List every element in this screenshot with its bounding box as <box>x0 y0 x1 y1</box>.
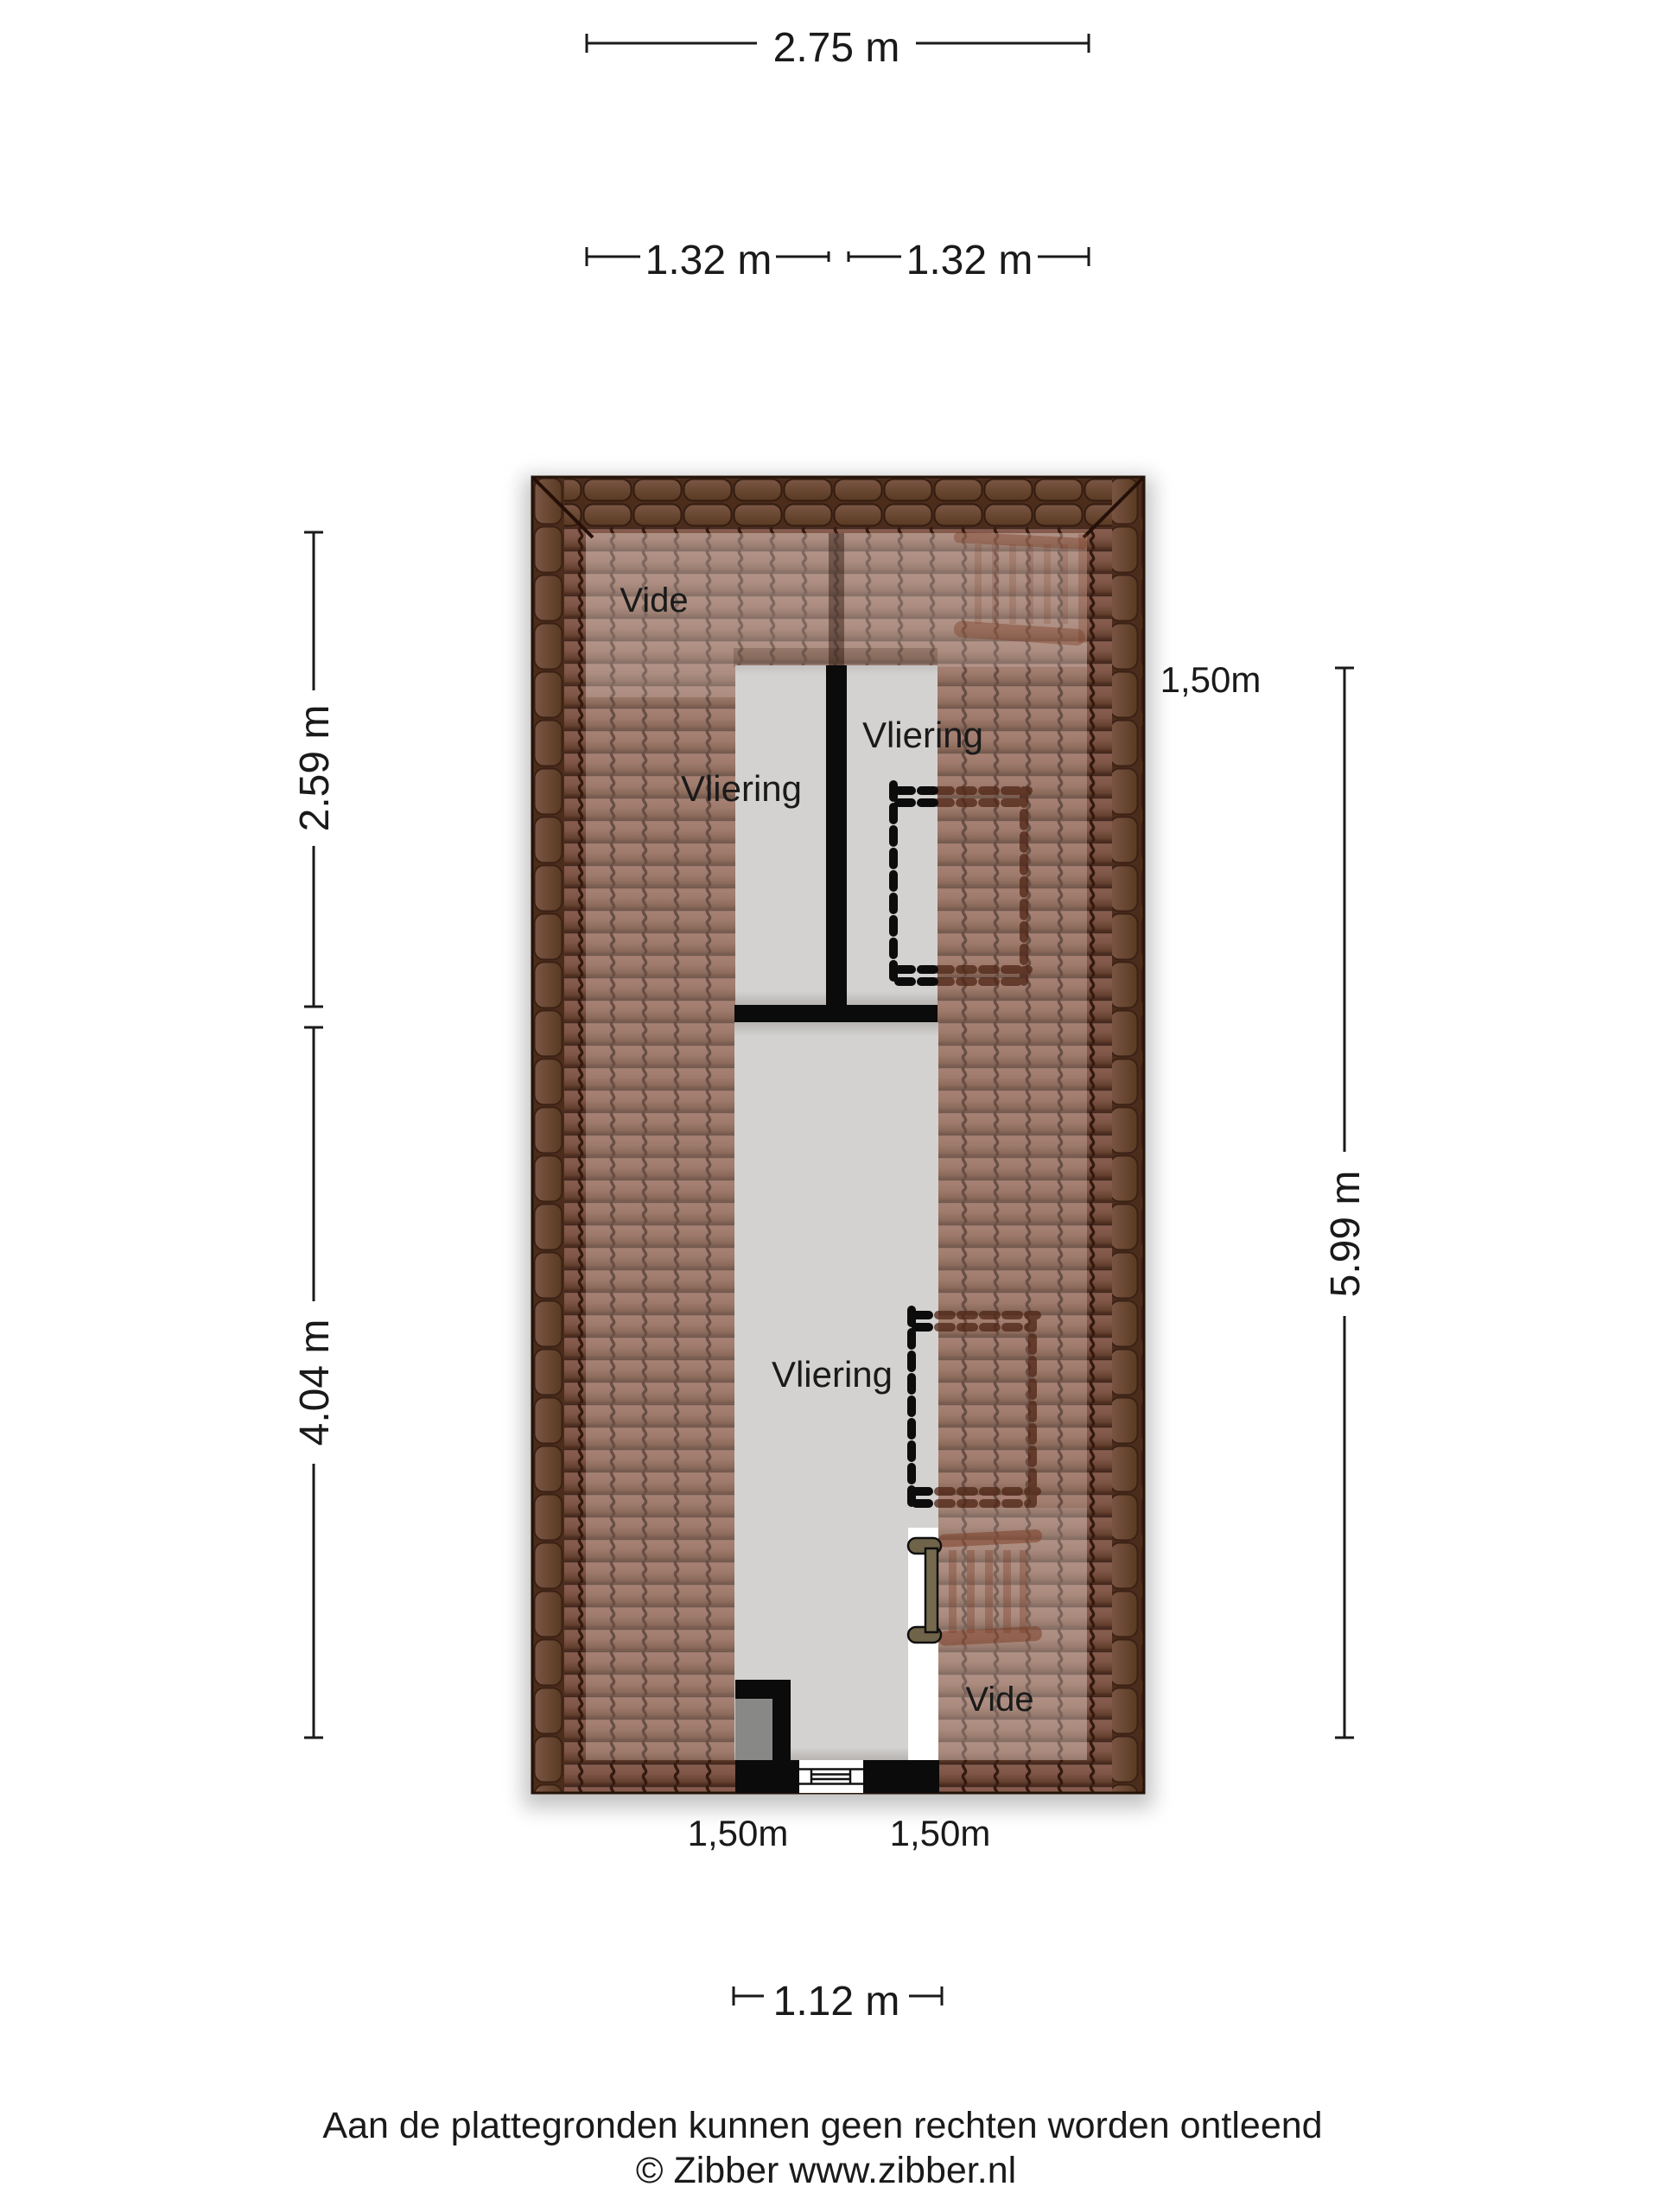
svg-text:1.12 m: 1.12 m <box>773 1979 900 2024</box>
svg-text:1,50m: 1,50m <box>688 1813 789 1853</box>
svg-text:Vide: Vide <box>620 582 688 620</box>
svg-text:Vliering: Vliering <box>681 768 802 809</box>
svg-text:Aan de plattegronden kunnen ge: Aan de plattegronden kunnen geen rechten… <box>322 2105 1322 2146</box>
svg-text:© Zibber www.zibber.nl: © Zibber www.zibber.nl <box>636 2150 1016 2191</box>
svg-text:Vliering: Vliering <box>772 1354 893 1395</box>
svg-text:Vide: Vide <box>965 1681 1033 1719</box>
svg-text:1.32 m: 1.32 m <box>645 238 772 283</box>
svg-text:5.99 m: 5.99 m <box>1323 1171 1369 1298</box>
svg-text:2.75 m: 2.75 m <box>773 25 900 71</box>
svg-text:1,50m: 1,50m <box>890 1813 991 1853</box>
svg-text:1.32 m: 1.32 m <box>906 238 1033 283</box>
svg-text:2.59 m: 2.59 m <box>292 705 338 832</box>
svg-text:Vliering: Vliering <box>862 715 983 755</box>
svg-text:1,50m: 1,50m <box>1160 659 1262 700</box>
svg-text:4.04 m: 4.04 m <box>292 1319 338 1446</box>
